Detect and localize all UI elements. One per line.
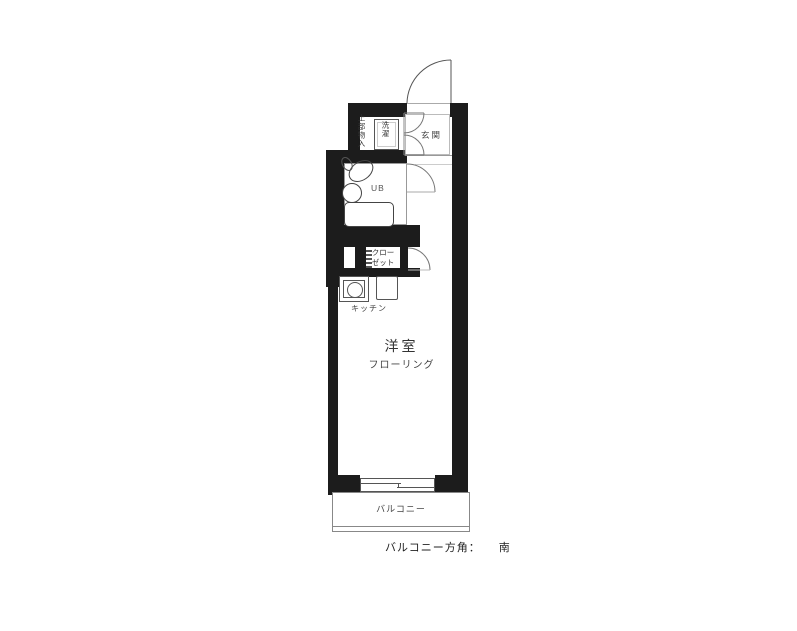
entrance-label: 玄関 bbox=[421, 129, 442, 141]
entrance-step-line bbox=[405, 155, 452, 156]
kitchen-burner-ring bbox=[347, 282, 363, 298]
wall-closet-right bbox=[400, 247, 408, 270]
bathtub bbox=[344, 202, 394, 227]
floorplan: 玄関 上部物入 洗濯 UB クロー ゼット キッチン 洋室 フローリング バルコ… bbox=[325, 55, 475, 560]
balcony-direction-value: 南 bbox=[499, 542, 511, 554]
wall-left-mid bbox=[328, 247, 338, 269]
closet-label-line2: ゼット bbox=[372, 258, 395, 267]
balcony-direction-label: バルコニー方角： bbox=[385, 542, 481, 554]
bath-sink bbox=[342, 183, 362, 203]
kitchen-burner bbox=[339, 276, 369, 302]
sliding-window-panel-left bbox=[361, 483, 401, 484]
sliding-window-tick bbox=[398, 483, 399, 488]
wall-left-lower bbox=[328, 268, 338, 490]
entrance-threshold-top bbox=[407, 103, 450, 104]
balcony-label: バルコニー bbox=[332, 502, 470, 515]
balcony-direction-caption: バルコニー方角：南 bbox=[385, 539, 511, 555]
kitchen-label: キッチン bbox=[344, 303, 394, 314]
page: { "page": { "caption": { "label": "バルコニー… bbox=[0, 0, 797, 631]
wall-below-ub bbox=[326, 225, 420, 247]
upper-storage-label: 上部物入 bbox=[356, 114, 367, 154]
closet-door-arc bbox=[408, 248, 430, 270]
bathroom-label: UB bbox=[371, 183, 385, 193]
main-room-label: 洋室 bbox=[338, 336, 465, 356]
kitchen-sink bbox=[376, 276, 398, 300]
washer-label: 洗濯 bbox=[380, 121, 391, 149]
wall-right bbox=[452, 103, 468, 496]
hall-line bbox=[415, 164, 452, 165]
main-room-flooring-label: フローリング bbox=[338, 356, 465, 371]
closet-label-line1: クロー bbox=[372, 248, 395, 257]
sliding-window bbox=[360, 478, 435, 492]
closet-label: クロー ゼット bbox=[367, 248, 399, 268]
bathroom-door-arc bbox=[407, 164, 435, 192]
wall-closet-left bbox=[355, 247, 366, 270]
balcony-edge-line bbox=[333, 526, 469, 527]
entrance-door-arc bbox=[407, 60, 451, 103]
sliding-window-panel-right bbox=[397, 487, 434, 488]
